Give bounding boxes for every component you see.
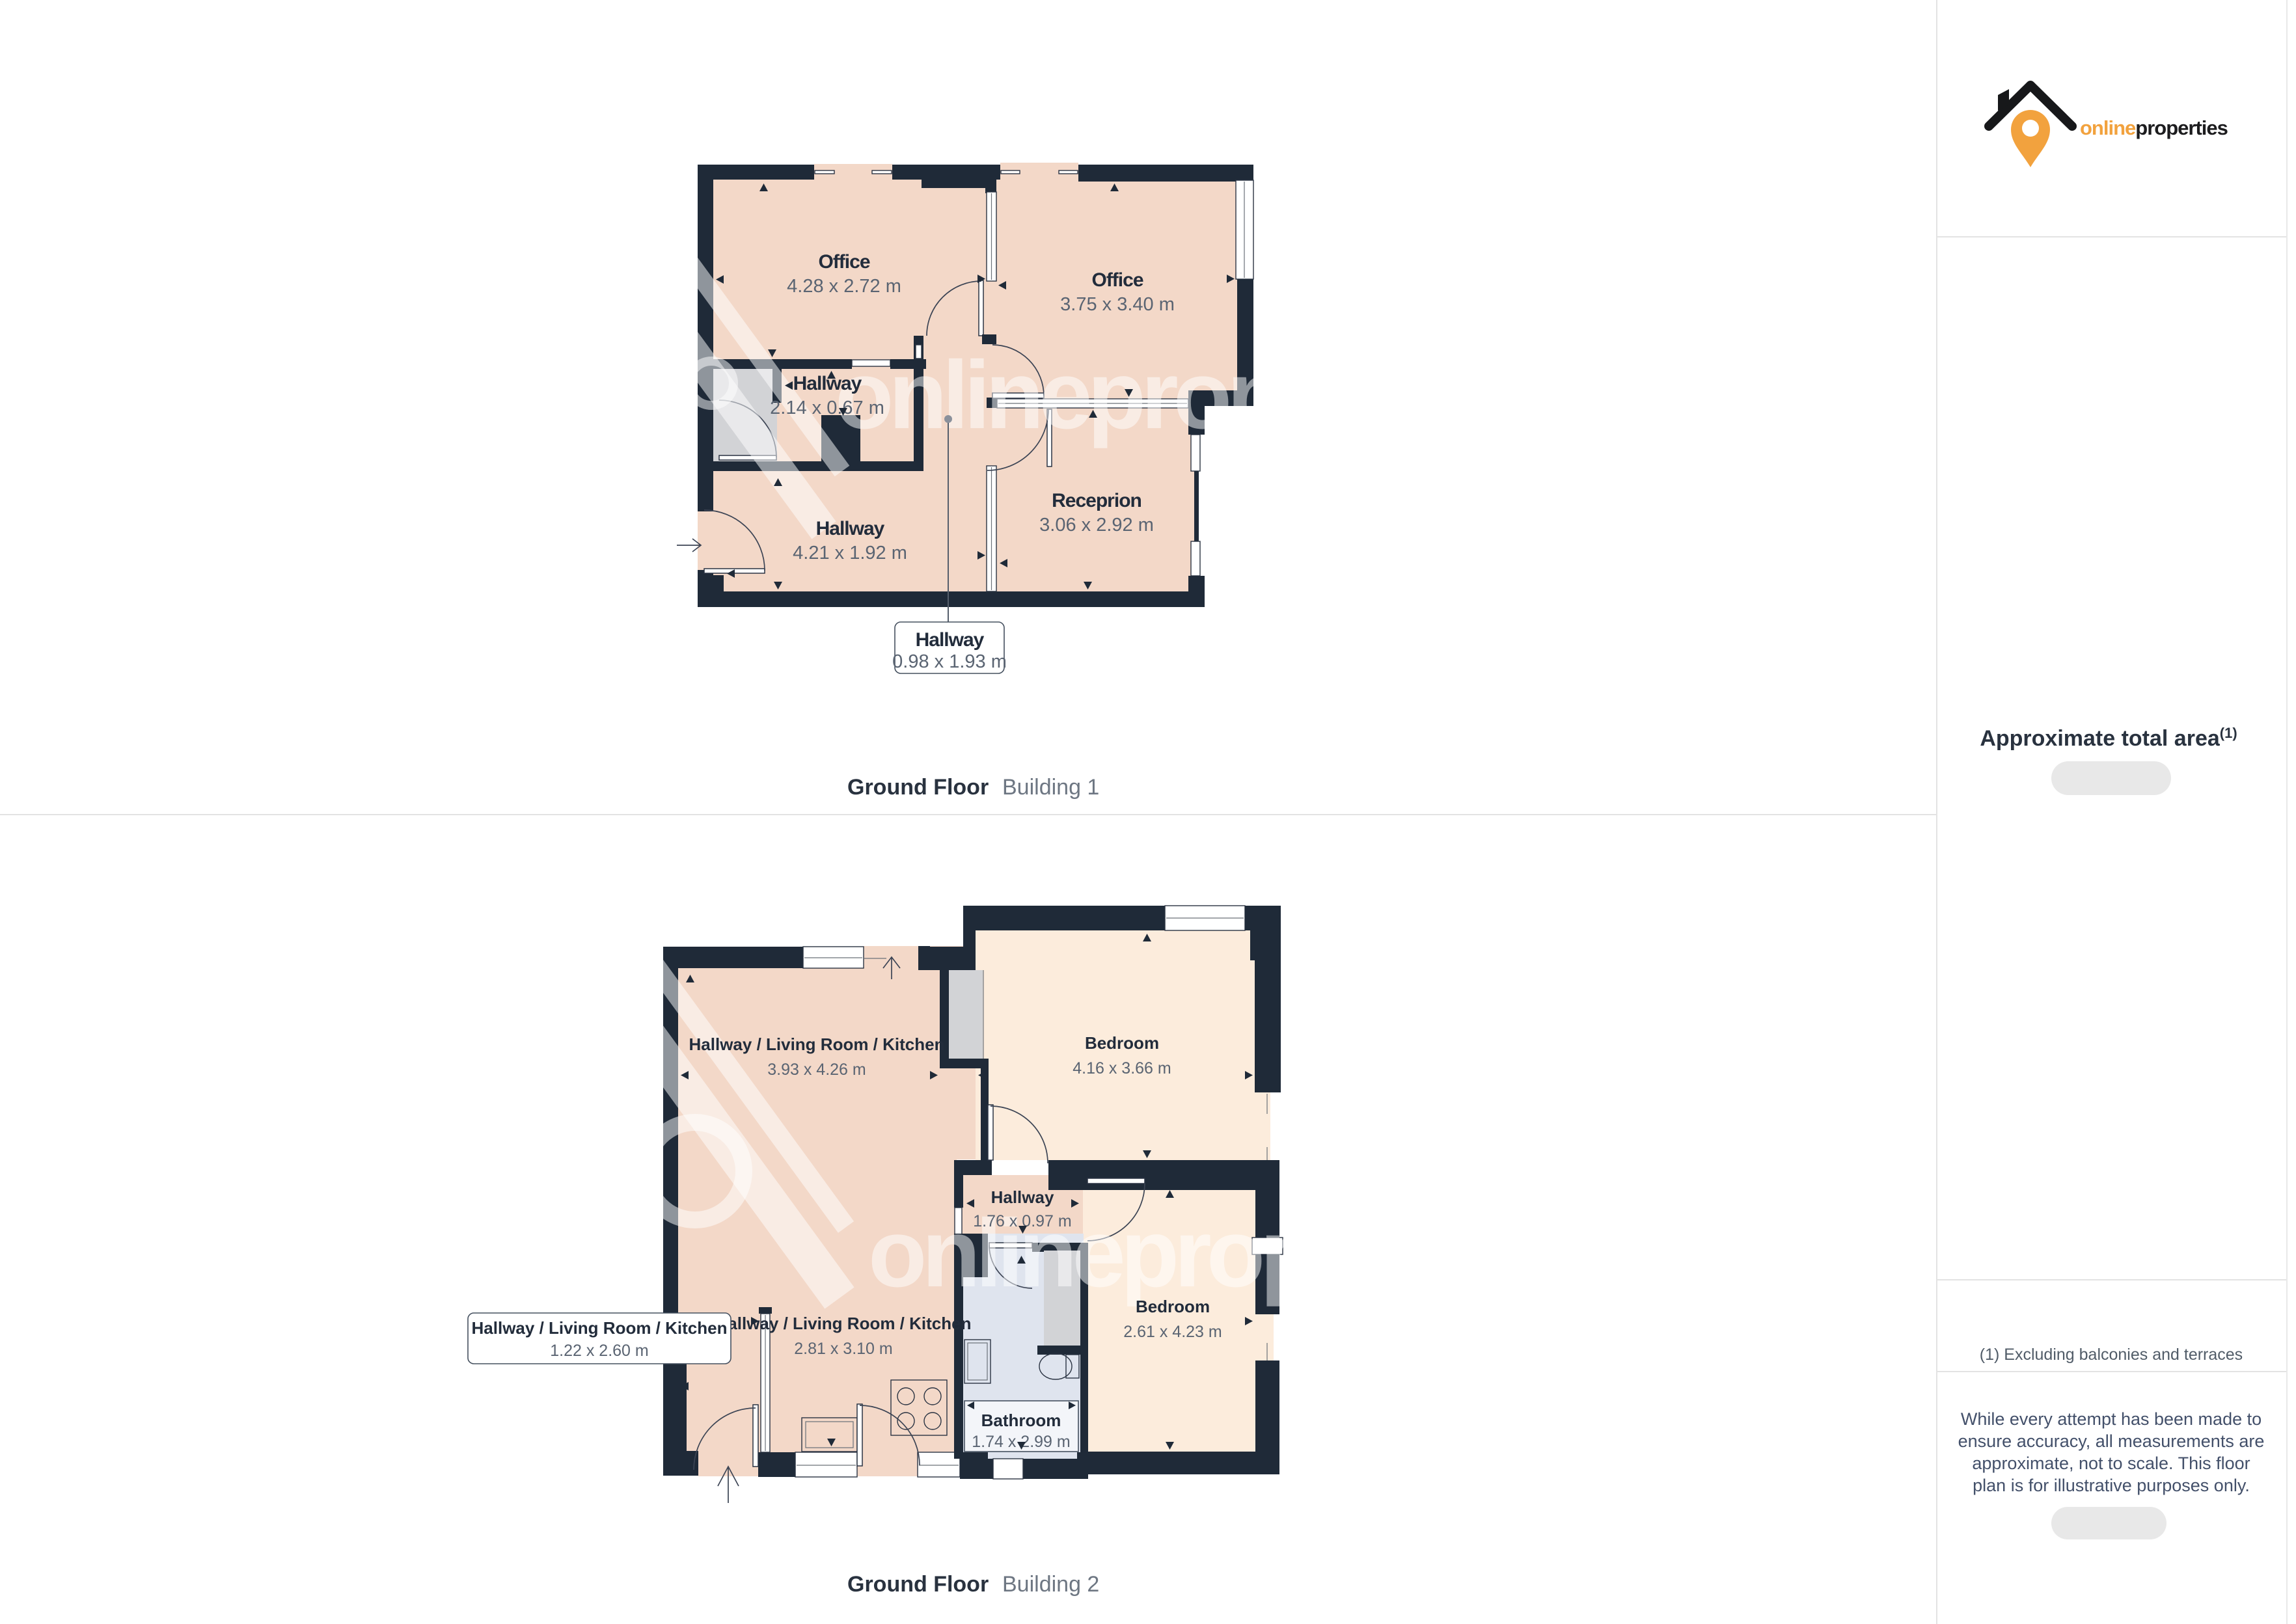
svg-text:3.06 x 2.92 m: 3.06 x 2.92 m [1039,515,1154,535]
svg-text:Bedroom: Bedroom [1085,1033,1159,1053]
svg-text:Receprion: Receprion [1052,490,1141,511]
svg-text:Ground Floor: Ground Floor [847,775,989,800]
svg-text:Ground Floor: Ground Floor [847,1572,989,1597]
svg-text:While every attempt has been m: While every attempt has been made to [1961,1409,2262,1429]
svg-text:0.98 x 1.93 m: 0.98 x 1.93 m [892,651,1007,672]
svg-text:Hallway: Hallway [991,1187,1054,1207]
svg-text:Approximate total area(1): Approximate total area(1) [1980,725,2237,751]
svg-text:4.16 x 3.66 m: 4.16 x 3.66 m [1073,1059,1171,1077]
svg-text:4.28 x 2.72 m: 4.28 x 2.72 m [787,276,901,297]
svg-text:2.81 x 3.10 m: 2.81 x 3.10 m [794,1340,892,1358]
svg-text:Hallway / Living Room / Kitche: Hallway / Living Room / Kitchen [689,1035,945,1054]
svg-text:Hallway: Hallway [816,518,885,539]
svg-text:Hallway / Living Room / Kitche: Hallway / Living Room / Kitchen [472,1318,728,1338]
svg-text:Building 1: Building 1 [1002,775,1099,800]
svg-text:onlineproperties: onlineproperties [2080,116,2228,139]
svg-text:3.93 x 4.26 m: 3.93 x 4.26 m [767,1061,866,1079]
svg-text:onlineproperties: onlineproperties [835,342,1508,449]
svg-text:Office: Office [818,251,869,273]
svg-text:2.14 x 0.67 m: 2.14 x 0.67 m [770,398,884,418]
svg-text:1.22 x 2.60 m: 1.22 x 2.60 m [550,1342,648,1360]
svg-text:Bathroom: Bathroom [981,1411,1061,1430]
svg-text:Building 2: Building 2 [1002,1572,1099,1597]
svg-text:Office: Office [1091,269,1143,291]
svg-text:(1) Excluding balconies and te: (1) Excluding balconies and terraces [1980,1346,2243,1364]
svg-text:Bedroom: Bedroom [1136,1297,1210,1316]
svg-text:plan is for illustrative purpo: plan is for illustrative purposes only. [1973,1476,2250,1495]
svg-text:Hallway: Hallway [916,629,985,651]
svg-text:Hallway: Hallway [793,373,862,394]
svg-text:2.61 x 4.23 m: 2.61 x 4.23 m [1123,1323,1222,1341]
svg-text:3.75 x 3.40 m: 3.75 x 3.40 m [1060,294,1175,315]
svg-text:4.21 x 1.92 m: 4.21 x 1.92 m [793,543,907,563]
svg-text:ensure accuracy, all measureme: ensure accuracy, all measurements are [1958,1431,2265,1451]
svg-text:approximate, not to scale. Thi: approximate, not to scale. This floor [1972,1454,2250,1473]
svg-text:onlineproperties: onlineproperties [868,1200,1541,1307]
